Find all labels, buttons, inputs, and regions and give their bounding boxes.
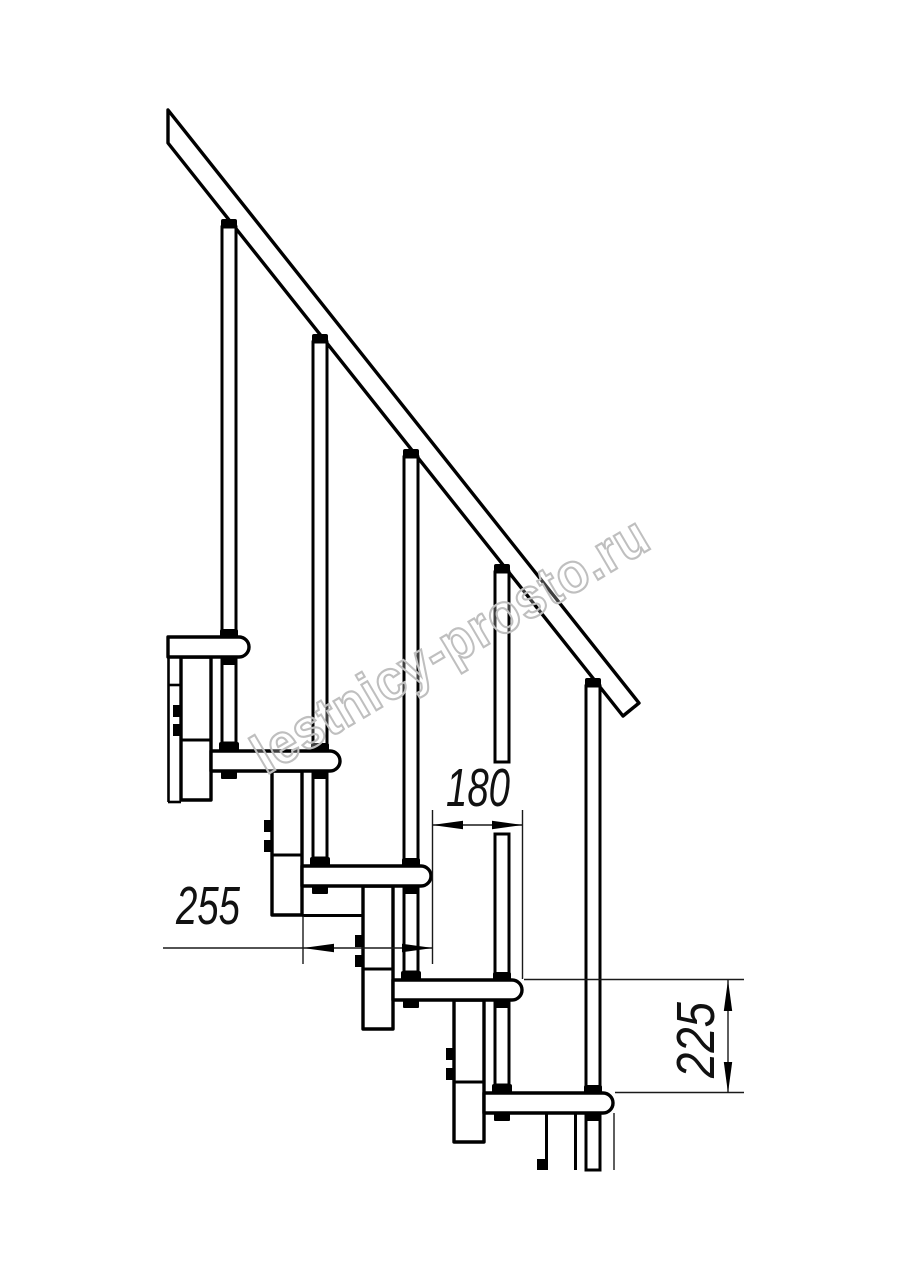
baluster-5 bbox=[586, 686, 600, 1093]
baluster-4-lower bbox=[495, 1000, 509, 1085]
baluster-4-upper-b bbox=[495, 834, 509, 980]
left-cut-plate bbox=[168, 637, 181, 802]
dimension-180-label: 180 bbox=[446, 758, 510, 818]
baluster-5-rail-cap bbox=[585, 678, 601, 687]
tread-5 bbox=[484, 1093, 613, 1113]
baluster-2-rail-cap bbox=[312, 334, 328, 343]
staircase-side-view-drawing: 180 255 225 lestnicy-prosto.ru bbox=[0, 0, 914, 1280]
dimension-255-label: 255 bbox=[175, 876, 240, 936]
support-module-3 bbox=[363, 886, 393, 1029]
dimension-225-label: 225 bbox=[666, 1001, 726, 1079]
baluster-2-lower bbox=[313, 771, 327, 858]
baluster-1-lower bbox=[222, 657, 236, 743]
baluster-3-rail-cap bbox=[403, 449, 419, 458]
support-module-5 bbox=[547, 1113, 576, 1170]
arrow-left-icon bbox=[432, 821, 463, 829]
baluster-1-rail-cap bbox=[221, 219, 237, 228]
support-module-2 bbox=[272, 771, 302, 915]
support-module-4 bbox=[454, 1000, 484, 1142]
baluster-3-lower bbox=[404, 886, 418, 972]
tread-3 bbox=[302, 866, 431, 886]
staircase-drawing-page: 180 255 225 lestnicy-prosto.ru bbox=[0, 0, 914, 1280]
arrow-left-icon bbox=[303, 944, 334, 952]
arrow-right-icon bbox=[492, 821, 523, 829]
baluster-1 bbox=[222, 227, 236, 637]
tread-4 bbox=[393, 980, 522, 1000]
support-module-1 bbox=[181, 657, 211, 800]
baluster-4-rail-cap bbox=[494, 564, 510, 573]
baluster-5-lower bbox=[586, 1113, 600, 1170]
tread-1 bbox=[168, 637, 249, 657]
dimension-225: 225 bbox=[524, 980, 744, 1094]
